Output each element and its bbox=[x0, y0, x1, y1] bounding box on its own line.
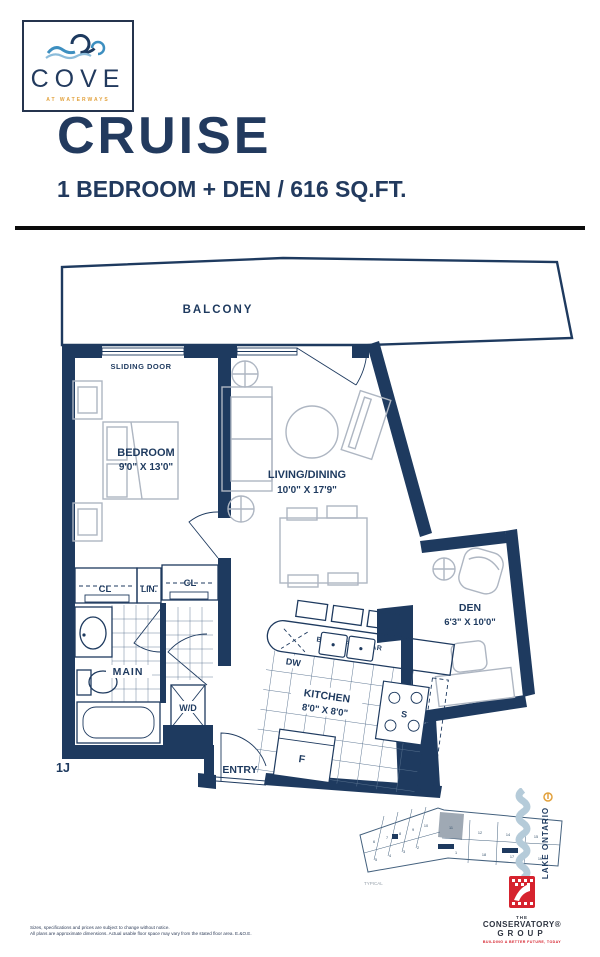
typical-caption: TYPICAL bbox=[364, 881, 383, 886]
brand-tagline: AT WATERWAYS bbox=[24, 97, 132, 103]
main-bathroom bbox=[75, 605, 213, 743]
wave-icon bbox=[42, 30, 114, 62]
floor-plan: BALCONY SLIDING DOOR bbox=[0, 245, 600, 805]
plan-title: CRUISE bbox=[57, 106, 271, 166]
sliding-door-label: SLIDING DOOR bbox=[110, 362, 171, 371]
bedroom-furniture bbox=[73, 381, 178, 541]
lake-ontario-label: LAKE ONTARIO bbox=[541, 807, 550, 879]
disclaimer: Sizes, specifications and prices are sub… bbox=[30, 925, 310, 937]
doors-and-windows bbox=[102, 348, 367, 785]
svg-text:1: 1 bbox=[455, 851, 457, 855]
den-label: DEN bbox=[459, 602, 481, 614]
svg-text:11: 11 bbox=[449, 826, 453, 830]
balcony-outline bbox=[62, 258, 572, 345]
svg-text:14: 14 bbox=[506, 833, 510, 837]
washer-dryer-label: W/D bbox=[179, 703, 197, 713]
den-dims: 6'3" X 10'0" bbox=[444, 617, 496, 628]
linen-label: LIN. bbox=[141, 584, 157, 594]
dishwasher-label: DW bbox=[285, 656, 302, 668]
plan-subtitle: 1 BEDROOM + DEN / 616 SQ.FT. bbox=[57, 176, 407, 203]
svg-text:8: 8 bbox=[399, 832, 401, 836]
svg-text:4: 4 bbox=[389, 854, 391, 858]
svg-text:18: 18 bbox=[482, 853, 486, 857]
cove-logo-box: COVE AT WATERWAYS bbox=[22, 20, 134, 112]
svg-text:5: 5 bbox=[375, 858, 377, 862]
disclaimer-line2: All plans are approximate dimensions. Ac… bbox=[30, 931, 310, 937]
builder-name: CONSERVATORY® bbox=[462, 920, 582, 929]
svg-text:9: 9 bbox=[412, 828, 414, 832]
brand-name: COVE bbox=[24, 65, 132, 94]
bedroom-dims: 9'0" X 13'0" bbox=[119, 462, 174, 473]
compass-icon bbox=[544, 793, 552, 801]
entry-label: ENTRY bbox=[222, 764, 257, 776]
svg-text:10: 10 bbox=[424, 824, 428, 828]
header-divider bbox=[15, 226, 585, 230]
svg-text:17: 17 bbox=[510, 855, 514, 859]
svg-text:6: 6 bbox=[373, 840, 375, 844]
main-bath-label: MAIN bbox=[113, 666, 144, 678]
balcony-label: BALCONY bbox=[183, 304, 254, 316]
svg-text:12: 12 bbox=[478, 831, 482, 835]
closet2-label: CL bbox=[184, 578, 197, 589]
svg-text:3: 3 bbox=[403, 850, 405, 854]
unit-number-label: 1J bbox=[56, 761, 70, 775]
builder-logo: THE CONSERVATORY® GROUP BUILDING A BETTE… bbox=[462, 876, 582, 944]
builder-tagline: BUILDING A BETTER FUTURE, TODAY bbox=[462, 940, 582, 944]
conservatory-group-icon bbox=[509, 876, 535, 908]
svg-text:7: 7 bbox=[386, 836, 388, 840]
closet-label: CL bbox=[99, 584, 112, 595]
bedroom-label: BEDROOM bbox=[117, 447, 174, 459]
living-dining-dims: 10'0" X 17'9" bbox=[277, 485, 337, 496]
svg-text:2: 2 bbox=[417, 846, 419, 850]
svg-text:15: 15 bbox=[534, 835, 538, 839]
water-band bbox=[519, 790, 527, 878]
living-dining-label: LIVING/DINING bbox=[268, 469, 346, 481]
builder-suffix: GROUP bbox=[462, 929, 582, 938]
